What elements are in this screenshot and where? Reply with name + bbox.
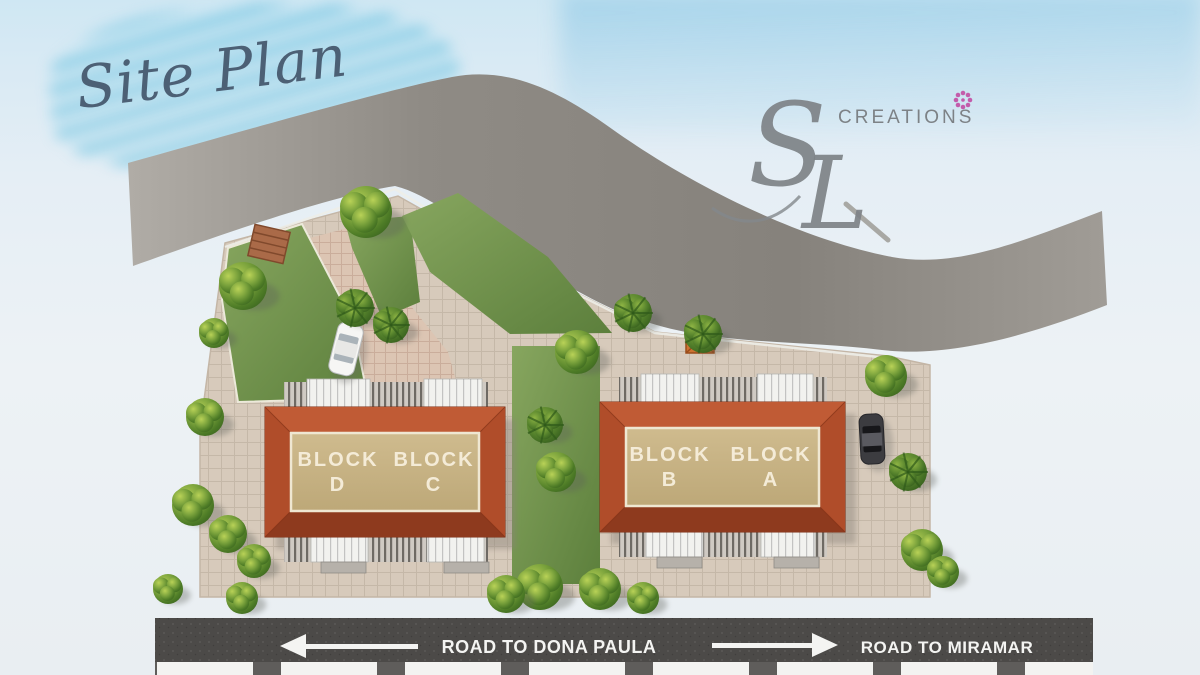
bottom-road: ROAD TO DONA PAULA ROAD TO MIRAMAR: [155, 618, 1093, 675]
flower-icon: [954, 91, 973, 110]
pergola: [248, 224, 290, 263]
building-block-ba: BLOCK B BLOCK A: [600, 374, 856, 568]
tree: [340, 186, 406, 239]
block-d-label-word: BLOCK: [297, 449, 378, 471]
sidewalk-slabs: [155, 662, 1093, 675]
building-block-dc: BLOCK D BLOCK C: [265, 379, 516, 573]
block-a-label-letter: A: [763, 469, 779, 491]
block-d-label-letter: D: [330, 474, 346, 496]
block-c-label-word: BLOCK: [393, 449, 474, 471]
block-b-label-letter: B: [662, 469, 678, 491]
block-b-label-word: BLOCK: [629, 444, 710, 466]
site-plan-illustration: BLOCK D BLOCK C: [0, 0, 1200, 675]
tree: [927, 556, 967, 588]
tree: [153, 574, 191, 604]
brand-monogram-l: L: [800, 135, 868, 252]
block-a-label-word: BLOCK: [730, 444, 811, 466]
site-plan-page: BLOCK D BLOCK C: [0, 0, 1200, 675]
road-label-dona-paula: ROAD TO DONA PAULA: [442, 637, 657, 657]
block-c-label-letter: C: [426, 474, 442, 496]
site-plan-title: Site Plan: [72, 21, 351, 122]
brand-name: CREATIONS: [838, 107, 974, 128]
road-label-miramar: ROAD TO MIRAMAR: [861, 638, 1033, 657]
